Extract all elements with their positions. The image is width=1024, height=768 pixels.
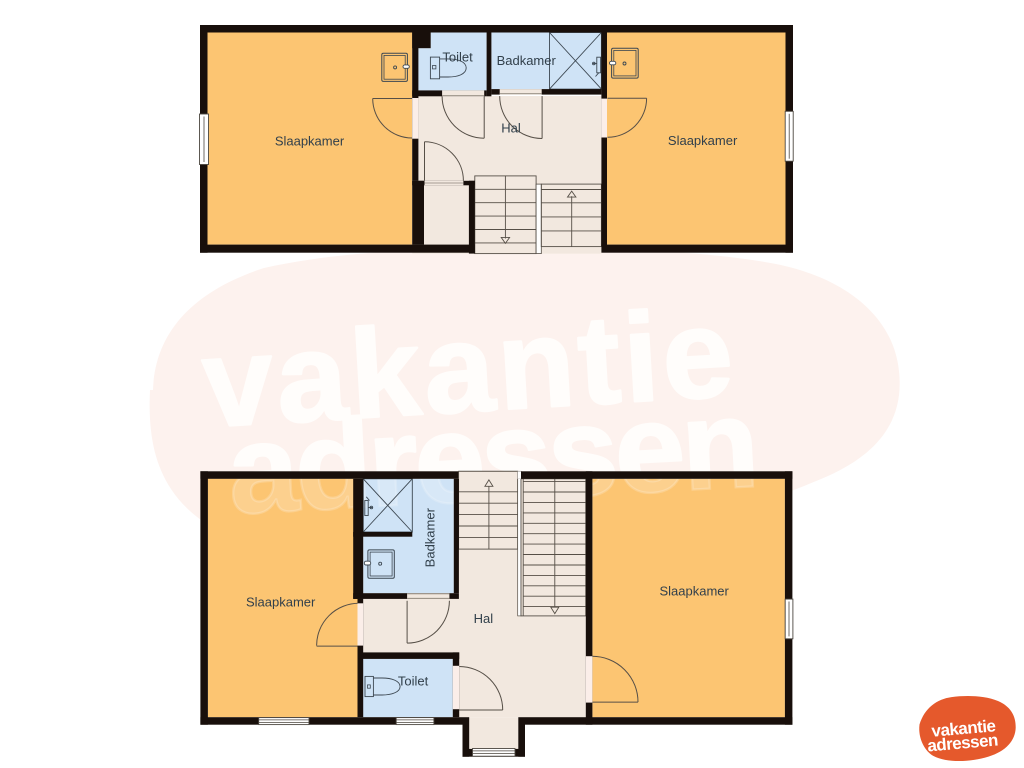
svg-text:Slaapkamer: Slaapkamer xyxy=(246,594,316,609)
svg-text:Slaapkamer: Slaapkamer xyxy=(275,134,345,149)
svg-text:Toilet: Toilet xyxy=(398,674,429,689)
svg-text:Badkamer: Badkamer xyxy=(423,507,438,567)
svg-text:Toilet: Toilet xyxy=(442,50,473,65)
svg-text:Badkamer: Badkamer xyxy=(497,53,557,68)
svg-text:Slaapkamer: Slaapkamer xyxy=(668,133,738,148)
svg-text:Slaapkamer: Slaapkamer xyxy=(660,584,730,599)
svg-text:Hal: Hal xyxy=(501,121,521,136)
svg-text:Hal: Hal xyxy=(474,611,494,626)
